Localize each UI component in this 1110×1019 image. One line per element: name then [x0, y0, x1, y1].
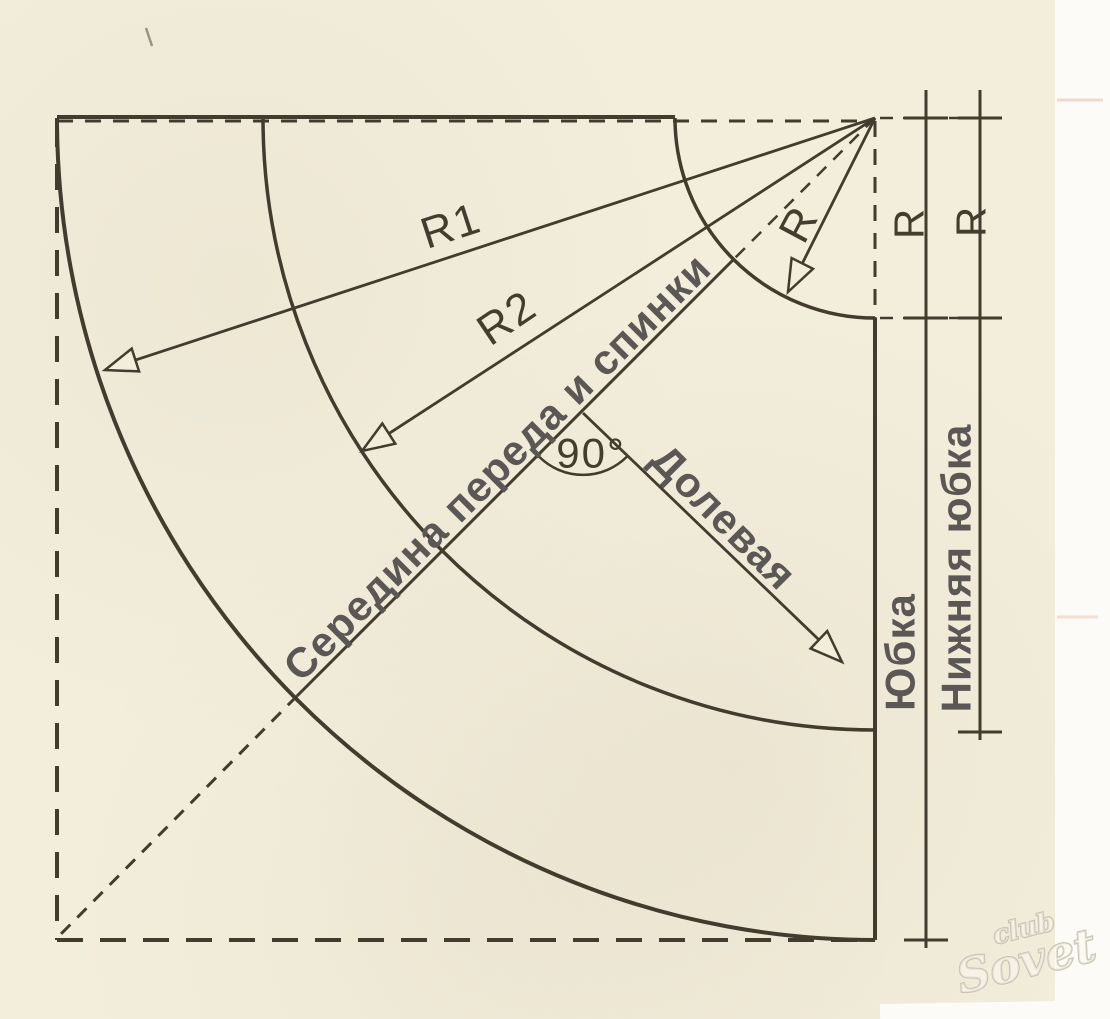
- watermark: club Sovet: [951, 907, 1101, 1004]
- scan-artifact-speck: [146, 28, 152, 46]
- diagonal-dashed-lower: [57, 696, 297, 938]
- label-underskirt: Нижняя юбка: [933, 424, 980, 713]
- r1-arrowhead: [105, 349, 139, 372]
- pattern-drafting-diagram: R1 R2 R 90° Середина переда и спинки Дол…: [0, 0, 1110, 1019]
- scanned-page: R1 R2 R 90° Середина переда и спинки Дол…: [0, 0, 1110, 1019]
- labels: R1 R2 R 90° Середина переда и спинки Дол…: [274, 193, 994, 712]
- label-dim-r-skirt: R: [886, 207, 933, 239]
- construction-lines: [57, 118, 1000, 940]
- label-r2: R2: [468, 281, 545, 355]
- r2-arrow-line: [362, 118, 875, 451]
- label-dim-r-underskirt: R: [948, 205, 995, 237]
- label-grain: Долевая: [642, 435, 806, 599]
- label-r: R: [769, 198, 828, 251]
- label-90-degrees: 90°: [556, 430, 626, 477]
- r-arrowhead: [788, 258, 813, 292]
- r2-arrowhead: [362, 424, 395, 452]
- label-skirt: Юбка: [877, 593, 924, 711]
